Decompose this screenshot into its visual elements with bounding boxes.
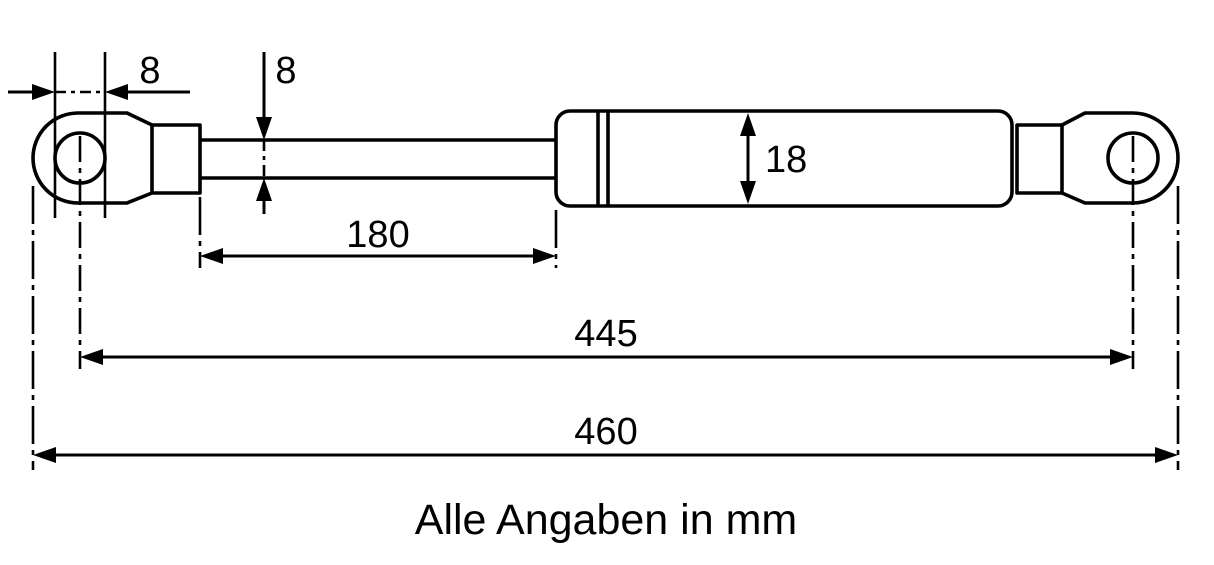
part-outline [33,111,1178,206]
dimension-labels: 8 8 18 180 445 460 Alle Angaben in mm [139,50,807,544]
rod-dim-arrow-down [256,117,272,140]
rod-length-arrow-left [200,248,223,264]
cylinder-dim-arrow-down [740,181,756,204]
label-overall-length: 460 [574,411,637,453]
label-rod-diameter: 8 [275,50,296,92]
rod-length-arrow-right [533,248,556,264]
overall-arrow-right [1155,447,1178,463]
technical-drawing-gas-spring: 8 8 18 180 445 460 Alle Angaben in mm [0,0,1214,565]
left-eyelet-outline [33,113,152,203]
cylinder-dim-arrow-up [740,113,756,136]
drawing-canvas: 8 8 18 180 445 460 Alle Angaben in mm [0,0,1214,565]
right-eyelet-outline [1062,113,1178,203]
hole-dim-arrow-left [32,84,55,100]
label-cylinder-diameter: 18 [765,139,807,181]
overall-arrow-left [33,447,56,463]
rod-dim-arrow-up [256,178,272,201]
units-note: Alle Angaben in mm [415,496,797,544]
label-eye-center-to-center: 445 [574,313,637,355]
label-rod-length: 180 [346,214,409,256]
label-eye-hole-diameter: 8 [139,50,160,92]
right-connector-block [1017,125,1062,193]
center-to-center-arrow-left [80,349,103,365]
center-to-center-arrow-right [1110,349,1133,365]
hole-dim-arrow-right [105,84,128,100]
left-connector-block [152,125,200,193]
